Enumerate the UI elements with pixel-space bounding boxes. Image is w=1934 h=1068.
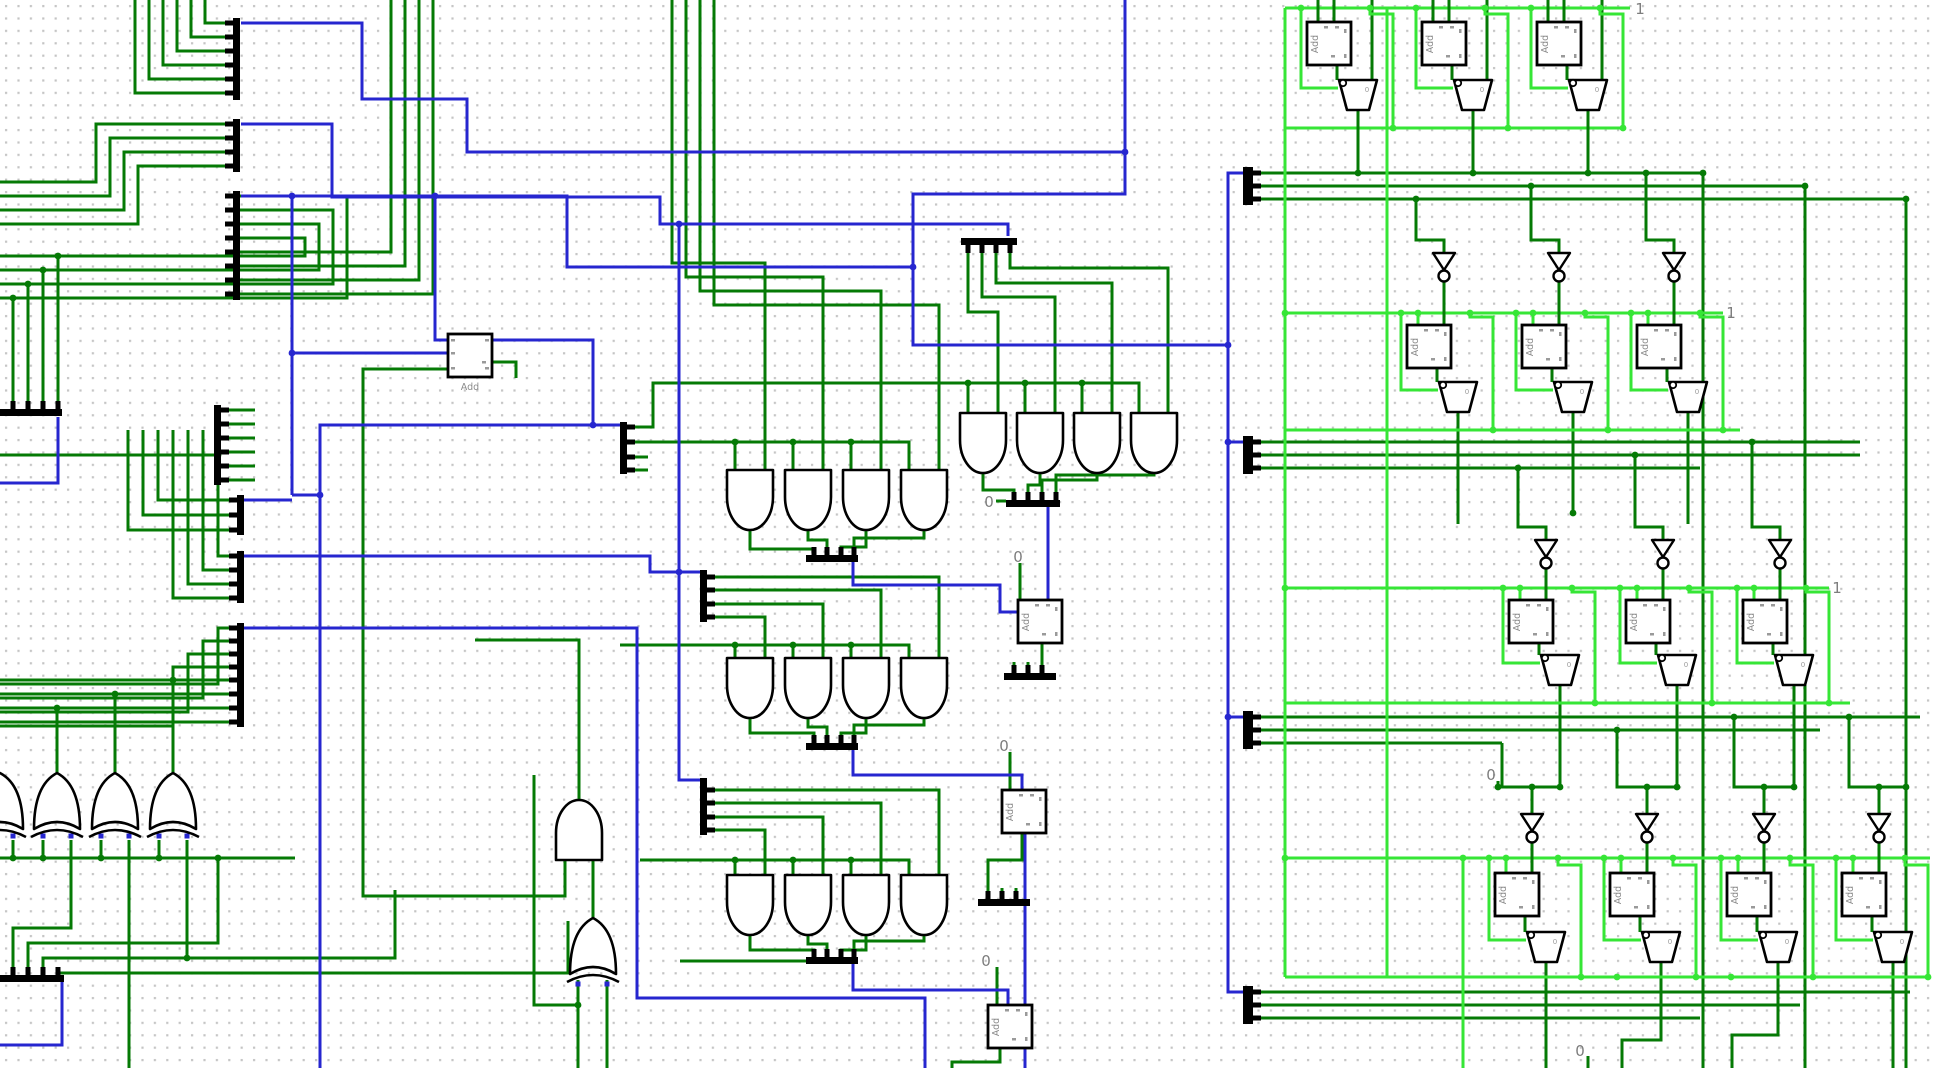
splitter-leg xyxy=(225,77,233,82)
wire-junction xyxy=(1513,310,1520,317)
not-gate-bubble xyxy=(1541,558,1552,569)
mux-select-pin xyxy=(1440,382,1446,388)
constant-value-label[interactable]: 1 xyxy=(1635,0,1645,18)
mux-select-pin xyxy=(1760,932,1766,938)
splitter-leg xyxy=(225,150,233,155)
bus-splitter[interactable] xyxy=(978,899,1030,906)
port-mark xyxy=(1532,905,1535,909)
wire-junction xyxy=(1810,974,1817,981)
splitter-leg xyxy=(812,949,817,957)
splitter-leg xyxy=(852,949,857,957)
and-gate[interactable] xyxy=(843,658,889,718)
wire-junction xyxy=(1486,855,1493,862)
port-mark xyxy=(1459,29,1462,33)
and-gate[interactable] xyxy=(785,658,831,718)
floating-port-marker xyxy=(576,982,581,987)
not-gate-bubble xyxy=(1669,271,1680,282)
port-mark xyxy=(1019,794,1023,797)
wire-junction xyxy=(1528,5,1535,12)
wire-junction xyxy=(1578,974,1585,981)
and-gate[interactable] xyxy=(960,413,1006,473)
splitter-leg xyxy=(707,615,715,620)
floating-port-marker xyxy=(185,834,190,839)
wire-junction xyxy=(1686,585,1693,592)
wire-junction xyxy=(1582,310,1589,317)
port-mark xyxy=(1439,26,1443,29)
wire-junction xyxy=(732,857,739,864)
and-gate[interactable] xyxy=(901,875,947,935)
and-gate[interactable] xyxy=(901,658,947,718)
port-mark xyxy=(1751,906,1755,909)
wire-junction xyxy=(1557,784,1564,791)
and-gate[interactable] xyxy=(901,470,947,530)
port-mark xyxy=(1512,877,1516,880)
not-gate-bubble xyxy=(1775,558,1786,569)
wire-junction xyxy=(40,267,47,274)
splitter-leg xyxy=(707,602,715,607)
splitter-leg xyxy=(225,63,233,68)
wire-junction xyxy=(1833,855,1840,862)
wire-junction xyxy=(1614,974,1621,981)
wire-junction xyxy=(676,569,683,576)
port-mark xyxy=(1331,55,1335,58)
wire-junction xyxy=(1674,784,1681,791)
and-gate[interactable] xyxy=(727,875,773,935)
port-mark xyxy=(1444,357,1447,361)
splitter-leg xyxy=(980,245,985,253)
adder-label: Add xyxy=(1525,338,1536,356)
port-mark xyxy=(1324,26,1328,29)
port-mark xyxy=(451,339,455,342)
wire-junction xyxy=(40,855,47,862)
port-mark xyxy=(1663,632,1666,636)
splitter-leg xyxy=(229,626,237,631)
splitter-leg xyxy=(1026,665,1031,673)
wire-junction xyxy=(184,955,191,962)
port-mark xyxy=(1042,633,1046,636)
splitter-leg xyxy=(627,425,635,430)
splitter-leg xyxy=(1253,715,1261,720)
wire-junction xyxy=(1720,427,1727,434)
constant-value-label[interactable]: 0 xyxy=(1575,1042,1585,1060)
port-mark xyxy=(1012,1038,1016,1041)
wire-junction xyxy=(1517,585,1524,592)
wire-junction xyxy=(1282,855,1289,862)
wire-junction xyxy=(1555,855,1562,862)
wire-junction xyxy=(1282,585,1289,592)
port-mark xyxy=(1055,607,1058,611)
splitter-leg xyxy=(1026,492,1031,500)
wire-junction xyxy=(1803,585,1810,592)
splitter-leg xyxy=(56,401,61,409)
splitter-leg xyxy=(225,236,233,241)
wire-junction xyxy=(10,295,17,302)
port-mark xyxy=(1764,905,1767,909)
mux-pin-label: 0 xyxy=(1785,938,1789,946)
splitter-leg xyxy=(1040,492,1045,500)
logisim-canvas[interactable]: AddAddAddAddAdd0Add0Add0Add0Add0Add0Add0… xyxy=(0,0,1934,1068)
wire-junction xyxy=(1614,727,1621,734)
splitter-leg xyxy=(225,194,233,199)
mux-select-pin xyxy=(1670,382,1676,388)
splitter-leg xyxy=(11,967,16,975)
port-mark xyxy=(1643,604,1647,607)
constant-value-label[interactable]: 0 xyxy=(999,737,1009,755)
floating-port-marker xyxy=(11,834,16,839)
splitter-leg xyxy=(839,547,844,555)
port-mark xyxy=(485,367,489,370)
mux-pin-label: 0 xyxy=(1465,388,1469,396)
and-gate[interactable] xyxy=(843,470,889,530)
wire-junction xyxy=(1634,585,1641,592)
mux-pin-label: 0 xyxy=(1801,661,1805,669)
wire-junction xyxy=(1643,170,1650,177)
wire-junction xyxy=(1791,784,1798,791)
wire-junction xyxy=(1225,342,1232,349)
splitter-leg xyxy=(229,554,237,559)
splitter-leg xyxy=(1040,665,1045,673)
splitter-leg xyxy=(225,91,233,96)
splitter-leg xyxy=(839,735,844,743)
wire-junction xyxy=(1850,855,1857,862)
splitter-leg xyxy=(852,547,857,555)
splitter-leg xyxy=(225,208,233,213)
wire-junction xyxy=(1902,855,1909,862)
bus-splitter[interactable] xyxy=(0,975,64,982)
adder-label: Add xyxy=(1005,803,1016,821)
port-mark xyxy=(482,361,486,364)
wire-junction xyxy=(54,705,61,712)
splitter-leg xyxy=(26,967,31,975)
wire-junction xyxy=(1528,183,1535,190)
wire-junction xyxy=(1731,714,1738,721)
wire-junction xyxy=(1298,5,1305,12)
port-mark xyxy=(451,367,455,370)
wire-junction xyxy=(575,1002,582,1009)
constant-value-label[interactable]: 1 xyxy=(1832,579,1842,597)
adder-label: Add xyxy=(1512,613,1523,631)
wire-junction xyxy=(1645,310,1652,317)
bus-splitter[interactable] xyxy=(233,18,240,100)
wire-junction xyxy=(98,855,105,862)
splitter-leg xyxy=(812,547,817,555)
splitter-leg xyxy=(229,692,237,697)
and-gate[interactable] xyxy=(1131,413,1177,473)
port-mark xyxy=(1574,29,1577,33)
splitter-leg xyxy=(966,245,971,253)
splitter-leg xyxy=(1000,891,1005,899)
port-mark xyxy=(1870,877,1874,880)
splitter-leg xyxy=(225,35,233,40)
wire-junction xyxy=(1632,452,1639,459)
splitter-leg xyxy=(221,464,229,469)
splitter-leg xyxy=(1012,492,1017,500)
wire-junction xyxy=(1122,149,1129,156)
port-mark xyxy=(1661,358,1665,361)
mux-pin-label: 0 xyxy=(1900,938,1904,946)
mux-select-pin xyxy=(1659,655,1665,661)
bus-splitter[interactable] xyxy=(1004,673,1056,680)
wire-junction xyxy=(1925,974,1932,981)
mux-select-pin xyxy=(1455,80,1461,86)
constant-value-label[interactable]: 0 xyxy=(1013,548,1023,566)
wire-junction xyxy=(289,350,296,357)
port-mark xyxy=(1546,607,1549,611)
port-mark xyxy=(1574,54,1577,58)
port-mark xyxy=(1554,26,1558,29)
adder-label: Add xyxy=(1613,886,1624,904)
wire-junction xyxy=(1413,196,1420,203)
and-gate[interactable] xyxy=(785,875,831,935)
port-mark xyxy=(1446,55,1450,58)
splitter-leg xyxy=(1253,1016,1261,1021)
floating-port-marker xyxy=(605,982,610,987)
wire-junction xyxy=(1460,855,1467,862)
port-mark xyxy=(1025,1012,1028,1016)
bus-splitter[interactable] xyxy=(961,238,1017,245)
wire-junction xyxy=(1826,700,1833,707)
bus-splitter[interactable] xyxy=(237,623,244,727)
bus-splitter[interactable] xyxy=(700,778,707,835)
wire-junction xyxy=(112,691,119,698)
bus-splitter[interactable] xyxy=(620,422,627,474)
adder-label: Add xyxy=(1730,886,1741,904)
wire-junction xyxy=(1597,5,1604,12)
constant-value-label[interactable]: 0 xyxy=(984,493,994,511)
constant-value-label[interactable]: 0 xyxy=(981,952,991,970)
port-mark xyxy=(1523,877,1527,880)
port-mark xyxy=(1647,880,1650,884)
bus-splitter[interactable] xyxy=(700,570,707,622)
mux-select-pin xyxy=(1643,932,1649,938)
splitter-leg xyxy=(1014,891,1019,899)
bus-splitter[interactable] xyxy=(806,555,858,562)
splitter-leg xyxy=(41,967,46,975)
mux-pin-label: 0 xyxy=(1567,661,1571,669)
splitter-leg xyxy=(225,21,233,26)
constant-value-label[interactable]: 0 xyxy=(1486,766,1496,784)
splitter-leg xyxy=(1253,440,1261,445)
wire-junction xyxy=(1876,784,1883,791)
splitter-leg xyxy=(994,245,999,253)
wire-junction xyxy=(732,439,739,446)
port-mark xyxy=(1459,54,1462,58)
and-gate[interactable] xyxy=(727,470,773,530)
splitter-leg xyxy=(627,468,635,473)
port-mark xyxy=(1879,880,1882,884)
floating-port-marker xyxy=(99,834,104,839)
and-gate[interactable] xyxy=(1017,413,1063,473)
adder-label: Add xyxy=(1746,613,1757,631)
port-mark xyxy=(1533,633,1537,636)
port-mark xyxy=(1650,633,1654,636)
port-mark xyxy=(1539,329,1543,332)
port-mark xyxy=(1344,54,1347,58)
bus-splitter[interactable] xyxy=(237,551,244,603)
wire-junction xyxy=(1500,585,1507,592)
wire-junction xyxy=(1618,855,1625,862)
bus-splitter[interactable] xyxy=(1243,711,1253,749)
wire-junction xyxy=(1225,439,1232,446)
port-mark xyxy=(1674,357,1677,361)
splitter-leg xyxy=(1253,466,1261,471)
bus-splitter[interactable] xyxy=(806,743,858,750)
splitter-leg xyxy=(707,815,715,820)
bus-splitter[interactable] xyxy=(0,409,62,416)
wire-junction xyxy=(1530,310,1537,317)
wire-junction xyxy=(55,253,62,260)
splitter-leg xyxy=(707,588,715,593)
bus-splitter[interactable] xyxy=(237,495,244,535)
bus-splitter[interactable] xyxy=(1243,436,1253,474)
mux-pin-label: 0 xyxy=(1365,86,1369,94)
splitter-leg xyxy=(707,828,715,833)
wire-junction xyxy=(1482,5,1489,12)
splitter-leg xyxy=(707,575,715,580)
splitter-leg xyxy=(1253,728,1261,733)
splitter-leg xyxy=(1253,453,1261,458)
port-mark xyxy=(1627,877,1631,880)
wire-junction xyxy=(1503,855,1510,862)
bus-splitter[interactable] xyxy=(806,957,858,964)
port-mark xyxy=(1879,905,1882,909)
port-mark xyxy=(1663,607,1666,611)
wire-junction xyxy=(1592,700,1599,707)
bus-splitter[interactable] xyxy=(1243,986,1253,1024)
bus-splitter[interactable] xyxy=(233,119,240,172)
port-mark xyxy=(1431,358,1435,361)
port-mark xyxy=(1546,632,1549,636)
wire-junction xyxy=(1709,700,1716,707)
wire-junction xyxy=(1670,855,1677,862)
port-mark xyxy=(1532,880,1535,884)
not-gate-bubble xyxy=(1554,271,1565,282)
wire-junction xyxy=(1751,585,1758,592)
port-mark xyxy=(1866,906,1870,909)
wire-junction xyxy=(1515,465,1522,472)
mux-pin-label: 0 xyxy=(1553,938,1557,946)
wire-junction xyxy=(1787,855,1794,862)
splitter-leg xyxy=(1253,990,1261,995)
wire-junction xyxy=(1413,5,1420,12)
splitter-leg xyxy=(225,49,233,54)
port-mark xyxy=(1550,329,1554,332)
wire-junction xyxy=(1693,974,1700,981)
bus-splitter[interactable] xyxy=(1243,167,1253,205)
wire-junction xyxy=(965,380,972,387)
and-gate[interactable] xyxy=(1074,413,1120,473)
splitter-leg xyxy=(812,735,817,743)
wire-junction xyxy=(1697,310,1704,317)
port-mark xyxy=(1035,604,1039,607)
wire-junction xyxy=(317,492,324,499)
adder-label: Add xyxy=(1021,613,1032,631)
wire-junction xyxy=(1079,380,1086,387)
wire-junction xyxy=(1390,125,1397,132)
circuit-schematic[interactable]: AddAddAddAddAdd0Add0Add0Add0Add0Add0Add0… xyxy=(0,0,1934,1068)
constant-value-label[interactable]: 1 xyxy=(1726,304,1736,322)
bus-splitter[interactable] xyxy=(214,405,221,485)
splitter-leg xyxy=(229,678,237,683)
port-mark xyxy=(1634,906,1638,909)
wire-junction xyxy=(1735,855,1742,862)
port-mark xyxy=(485,339,489,342)
splitter-leg xyxy=(221,422,229,427)
floating-port-marker xyxy=(69,834,74,839)
splitter-leg xyxy=(1008,245,1013,253)
wire-junction xyxy=(790,439,797,446)
wire-junction xyxy=(732,642,739,649)
splitter-leg xyxy=(627,440,635,445)
splitter-leg xyxy=(1054,492,1059,500)
wire-junction xyxy=(1570,510,1577,517)
wire-junction xyxy=(1620,125,1627,132)
wire-junction xyxy=(1505,125,1512,132)
port-mark xyxy=(1780,632,1783,636)
wire-junction xyxy=(910,264,917,271)
mux-pin-label: 0 xyxy=(1580,388,1584,396)
splitter-leg xyxy=(225,122,233,127)
adder-label: Add xyxy=(991,1018,1002,1036)
splitter-leg xyxy=(229,513,237,518)
adder-label: Add xyxy=(1540,35,1551,53)
wire-junction xyxy=(1022,380,1029,387)
not-gate-bubble xyxy=(1439,271,1450,282)
wire-junction xyxy=(1903,784,1910,791)
mux-select-pin xyxy=(1875,932,1881,938)
floating-port-marker xyxy=(127,834,132,839)
port-mark xyxy=(1665,329,1669,332)
port-mark xyxy=(1039,797,1042,801)
splitter-leg xyxy=(225,264,233,269)
bus-splitter[interactable] xyxy=(1006,500,1060,507)
adder-label: Add xyxy=(1845,886,1856,904)
port-mark xyxy=(1654,604,1658,607)
port-mark xyxy=(1026,823,1030,826)
wire-junction xyxy=(1728,974,1735,981)
mux-pin-label: 0 xyxy=(1668,938,1672,946)
splitter-leg xyxy=(225,278,233,283)
floating-port-marker xyxy=(41,834,46,839)
wire-junction xyxy=(1617,585,1624,592)
splitter-leg xyxy=(1012,665,1017,673)
wire-junction xyxy=(1398,310,1405,317)
splitter-leg xyxy=(229,596,237,601)
splitter-leg xyxy=(225,136,233,141)
mux-select-pin xyxy=(1570,80,1576,86)
wire-junction xyxy=(1225,714,1232,721)
not-gate-bubble xyxy=(1527,832,1538,843)
port-mark xyxy=(1674,332,1677,336)
floating-port-marker xyxy=(157,834,162,839)
port-mark xyxy=(1055,632,1058,636)
and-gate[interactable] xyxy=(843,875,889,935)
splitter-leg xyxy=(825,735,830,743)
wire-junction xyxy=(848,857,855,864)
splitter-leg xyxy=(229,665,237,670)
bus-splitter[interactable] xyxy=(233,191,240,300)
port-mark xyxy=(1859,877,1863,880)
and-gate[interactable] xyxy=(556,800,602,860)
adder-label: Add xyxy=(1310,35,1321,53)
wire-junction xyxy=(1601,855,1608,862)
and-gate[interactable] xyxy=(727,658,773,718)
wire-junction xyxy=(1802,183,1809,190)
splitter-leg xyxy=(627,455,635,460)
and-gate[interactable] xyxy=(785,470,831,530)
splitter-leg xyxy=(1253,741,1261,746)
wire-junction xyxy=(215,855,222,862)
